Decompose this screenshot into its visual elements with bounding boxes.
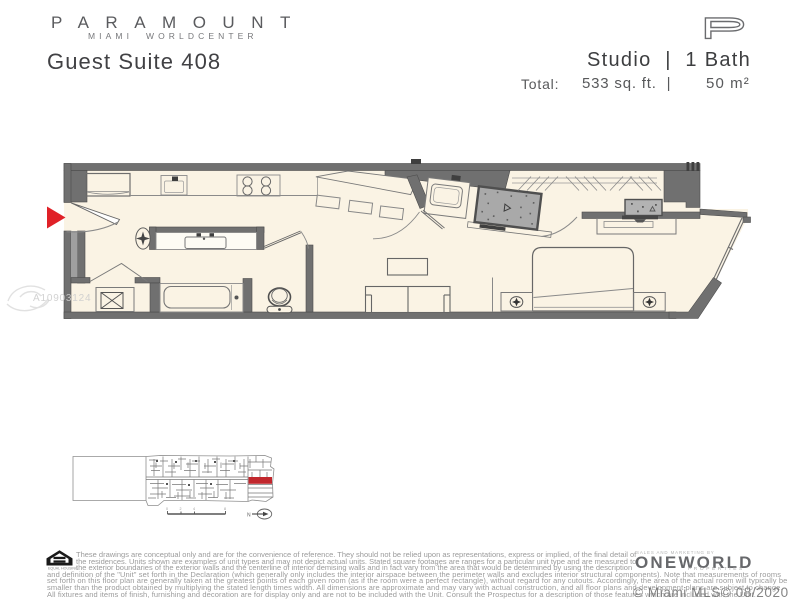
svg-text:0: 0 xyxy=(166,507,168,511)
svg-text:2: 2 xyxy=(180,507,182,511)
svg-text:4: 4 xyxy=(193,507,195,511)
svg-text:8: 8 xyxy=(224,507,226,511)
svg-text:N: N xyxy=(247,513,251,519)
svg-text:EQUAL HOUSING: EQUAL HOUSING xyxy=(48,567,78,571)
